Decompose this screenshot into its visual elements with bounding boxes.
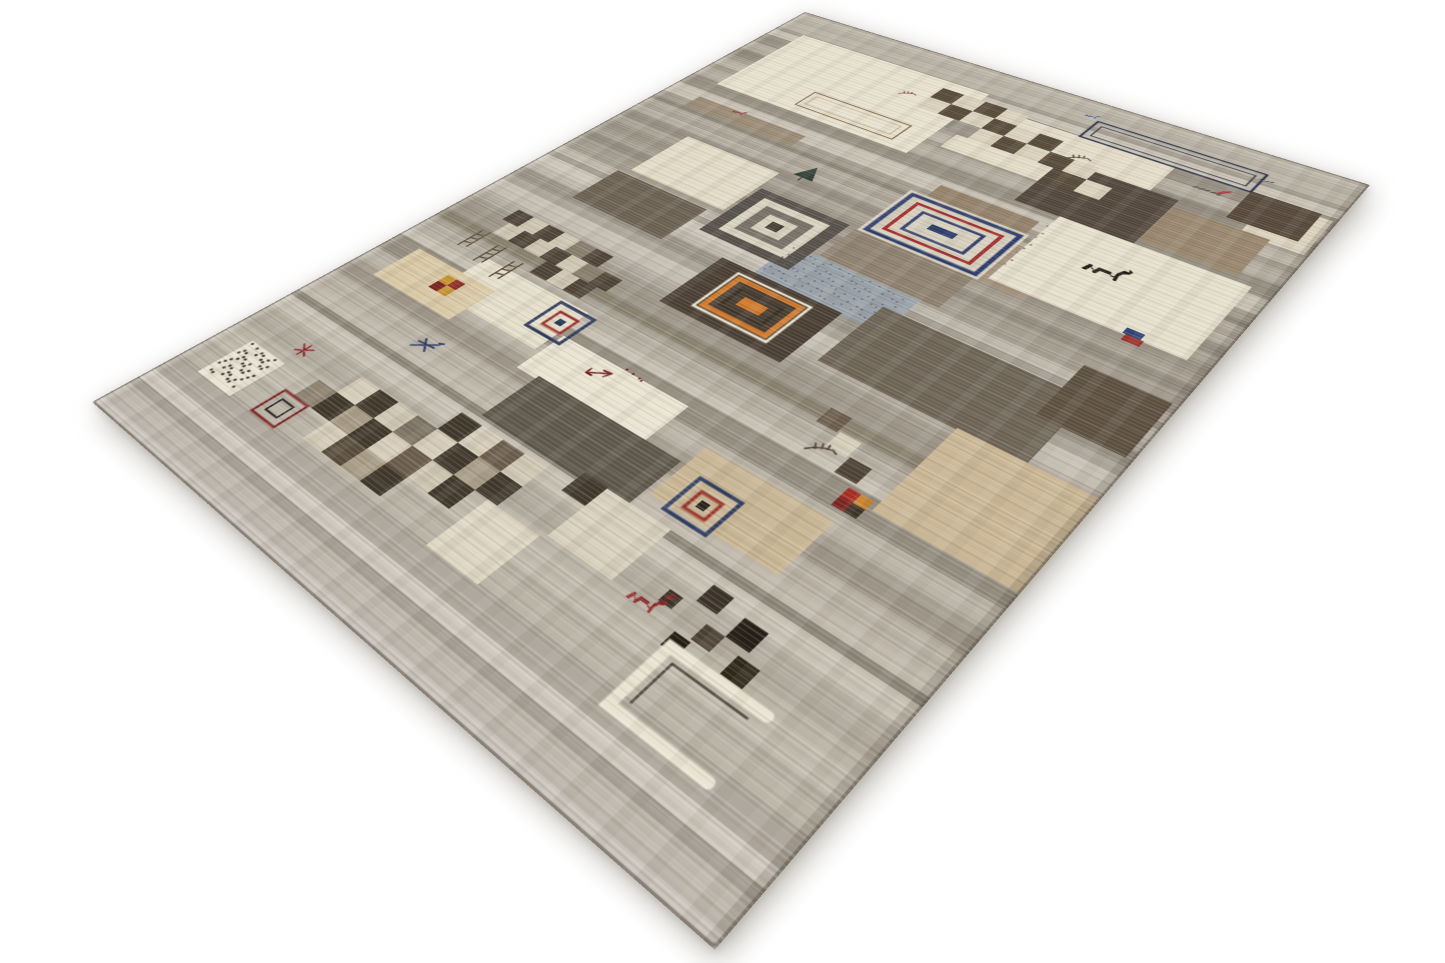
rug-photo xyxy=(0,0,1445,963)
rug xyxy=(92,12,1370,950)
rug-design xyxy=(92,12,1370,950)
photo-background: Product photo of a hand-knotted grey Per… xyxy=(0,0,1445,963)
